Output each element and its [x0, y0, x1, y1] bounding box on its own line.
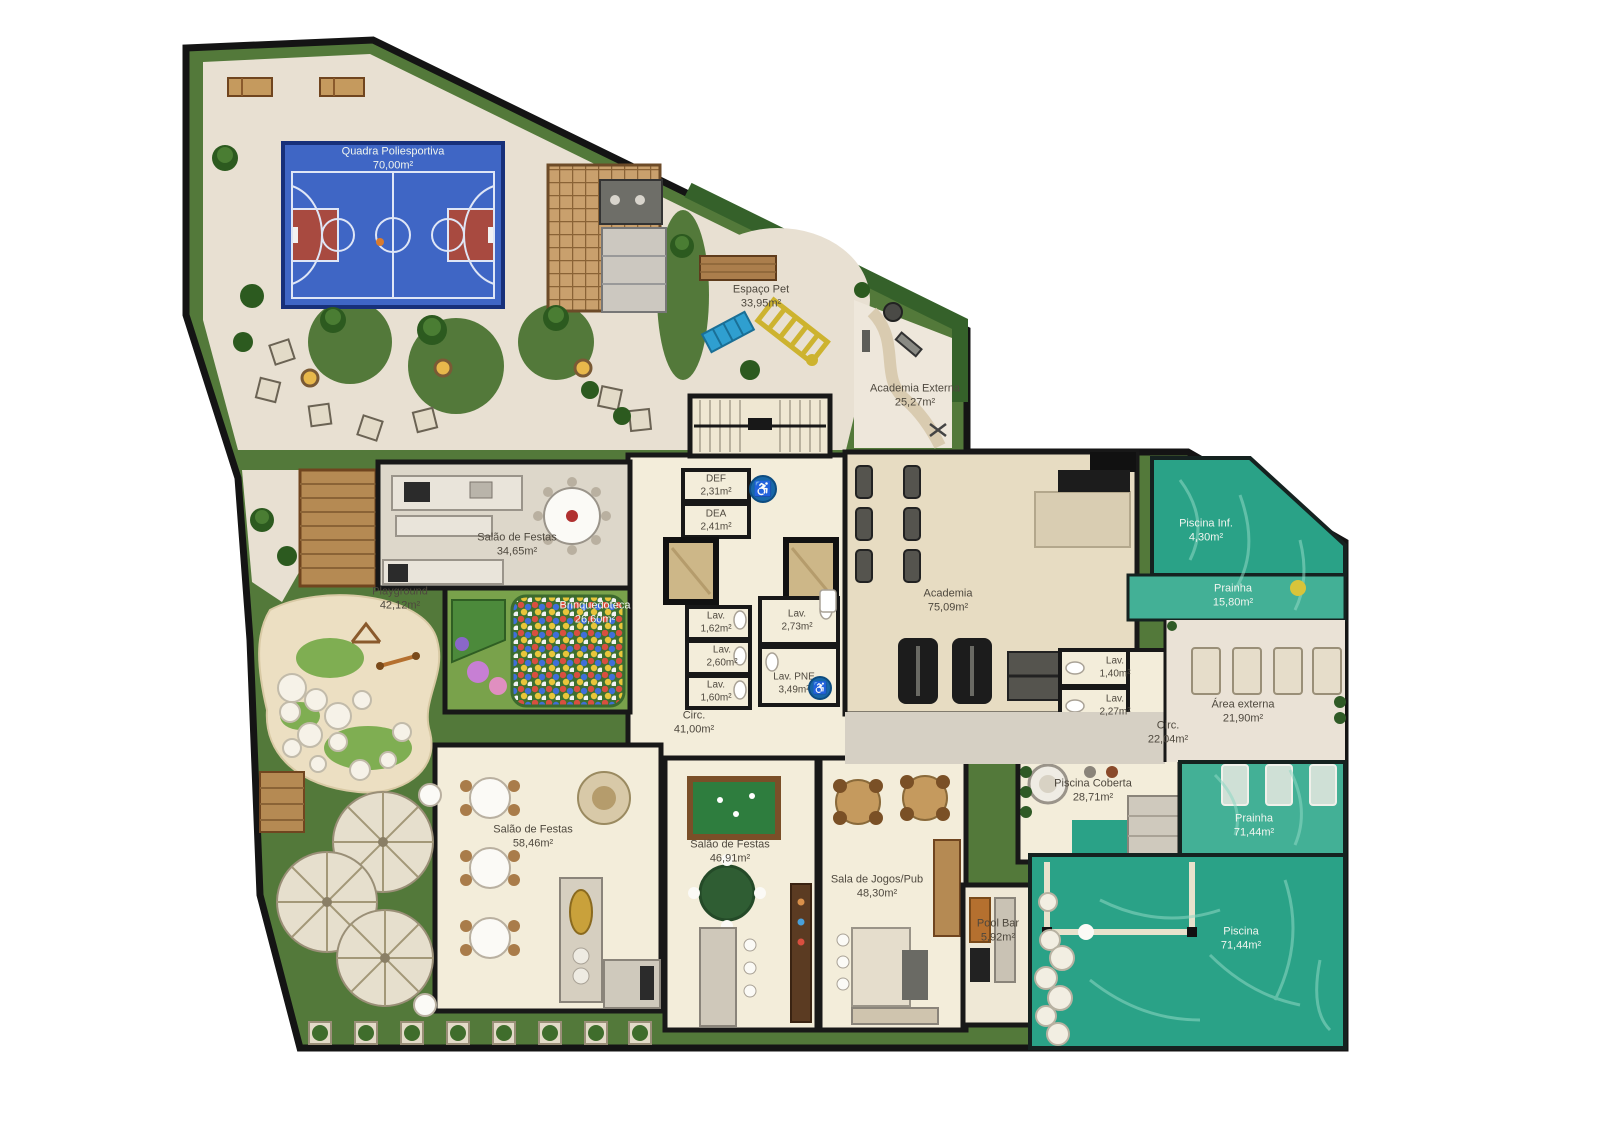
- wheelchair-accessible-icon: ♿: [808, 676, 832, 700]
- lavatories-left: [687, 607, 750, 708]
- floor-plan-rendering: [0, 0, 1600, 1131]
- stone-walkway: [845, 712, 1165, 764]
- party-room-2: [435, 745, 661, 1011]
- playground-area: [259, 595, 439, 792]
- wheelchair-accessible-icon: ♿: [749, 475, 777, 503]
- indoor-pool-room: [1018, 758, 1180, 862]
- party-room-1: [378, 462, 630, 588]
- kids-playroom: [445, 588, 630, 712]
- games-room-pub: [820, 758, 966, 1030]
- pergola: [548, 165, 666, 312]
- staircase: [690, 396, 830, 456]
- basketball-court: [283, 143, 503, 307]
- floor-plan-page: Quadra Poliesportiva70,00m² Espaço Pet33…: [0, 0, 1600, 1131]
- party-room-3: [665, 758, 817, 1030]
- beach-entry-1: [1128, 575, 1345, 620]
